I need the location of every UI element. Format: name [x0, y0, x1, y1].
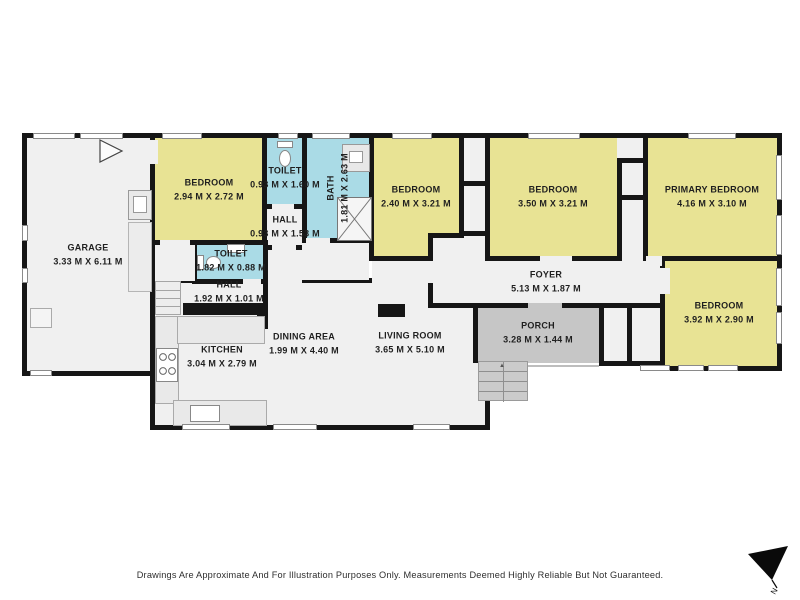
window: [688, 133, 736, 139]
window: [678, 365, 704, 371]
north-arrow-icon: N: [742, 540, 794, 598]
kitchen-sink-icon: [190, 405, 220, 422]
window: [278, 133, 298, 139]
window: [528, 133, 580, 139]
window: [162, 133, 202, 139]
door-opening-bedroom1: [160, 240, 190, 250]
window: [776, 155, 782, 200]
door-opening-garage: [148, 140, 158, 164]
garage-sink-basin: [133, 196, 147, 213]
window: [273, 424, 317, 430]
window: [30, 370, 52, 376]
foyer-label: FOYER5.13 M X 1.87 M: [511, 269, 581, 296]
kitchen-counter: [173, 400, 267, 426]
passage-below-bedroom1: [155, 245, 195, 281]
window: [413, 424, 450, 430]
foyer-notch-fill: [464, 236, 485, 263]
bedroom1-label: BEDROOM2.94 M X 2.72 M: [174, 177, 244, 204]
window: [392, 133, 432, 139]
bath-label: BATH1.81 M X 2.63 M: [325, 153, 352, 223]
toilet-top-label: TOILET0.93 M X 1.60 M: [250, 165, 320, 192]
toilet-icon: [277, 141, 293, 148]
stove-icon: [156, 348, 178, 382]
passage-below-hall: [268, 250, 302, 306]
porch-steps: ▲: [478, 361, 528, 401]
window: [776, 312, 782, 344]
window: [33, 133, 75, 139]
bedroom2-label: BEDROOM2.40 M X 3.21 M: [381, 184, 451, 211]
disclaimer-text: Drawings Are Approximate And For Illustr…: [0, 570, 800, 580]
closet-b-bottom-fill: [622, 232, 643, 261]
door-opening-toilet-top: [272, 204, 294, 214]
steps-up-arrow-icon: ▲: [499, 363, 505, 369]
window: [22, 225, 28, 241]
window: [22, 268, 28, 283]
garage-label: GARAGE3.33 M X 6.11 M: [53, 242, 122, 269]
door-opening-bedroom4: [660, 268, 670, 294]
dining-top-open: [372, 261, 483, 283]
passage-below-bath: [302, 243, 369, 280]
window: [776, 268, 782, 306]
bedroom3-label: BEDROOM3.50 M X 3.21 M: [518, 184, 588, 211]
closet-c2: [627, 303, 665, 366]
garage-counter: [128, 222, 152, 292]
wall-stub-dining: [378, 304, 405, 317]
window: [182, 424, 230, 430]
window: [708, 365, 738, 371]
kitchen-label: KITCHEN3.04 M X 2.79 M: [187, 344, 257, 371]
kitchen-counter: [177, 316, 265, 344]
porch-label: PORCH3.28 M X 1.44 M: [503, 320, 573, 347]
window: [640, 365, 670, 371]
door-opening-primary: [646, 256, 662, 266]
door-opening-front: [528, 303, 562, 313]
porch-path-line: [528, 365, 599, 367]
garage-door-swing-icon: [96, 138, 126, 166]
living-label: LIVING ROOM3.65 M X 5.10 M: [375, 330, 445, 357]
hall-mid-label: HALL1.92 M X 1.01 M: [194, 279, 264, 306]
stairs-icon: [155, 281, 181, 315]
hall-top-label: HALL0.93 M X 1.53 M: [250, 214, 320, 241]
toilet-mid-label: TOILET1.82 M X 0.88 M: [196, 248, 266, 275]
bedroom4-label: BEDROOM3.92 M X 2.90 M: [684, 300, 754, 327]
door-opening-hall-top: [272, 245, 296, 255]
window: [776, 215, 782, 255]
garage-fixture: [30, 308, 52, 328]
window: [80, 133, 123, 139]
door-opening-bedroom3: [540, 256, 572, 266]
dining-label: DINING AREA1.99 M X 4.40 M: [269, 331, 339, 358]
foyer-notch: [428, 233, 464, 261]
window: [312, 133, 350, 139]
north-label: N: [769, 586, 780, 596]
floor-plan: ▲: [0, 0, 800, 600]
primary-bedroom-label: PRIMARY BEDROOM4.16 M X 3.10 M: [665, 184, 759, 211]
